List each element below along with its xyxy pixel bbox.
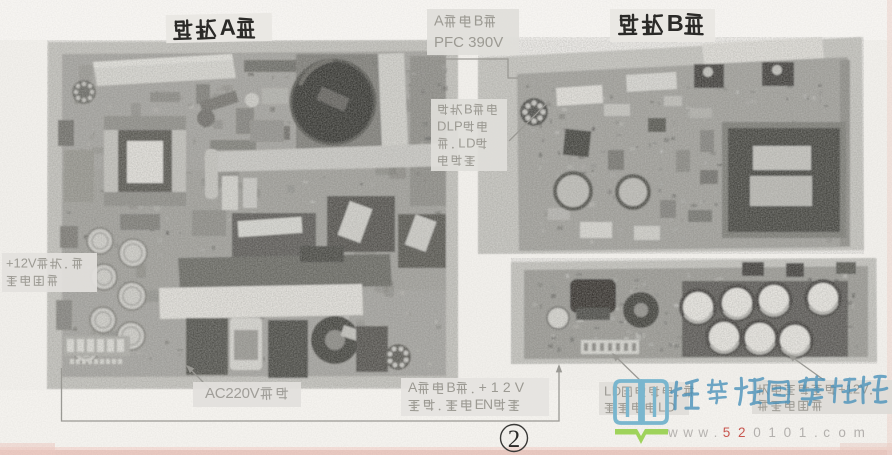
svg-text:LD: LD	[604, 383, 621, 398]
svg-text:A: A	[434, 14, 444, 30]
svg-text:0: 0	[784, 425, 792, 440]
svg-text:w: w	[697, 425, 708, 440]
svg-text:B: B	[446, 379, 455, 395]
svg-text:LD: LD	[458, 135, 475, 150]
svg-text:0: 0	[753, 425, 761, 440]
svg-text:2: 2	[508, 426, 521, 453]
svg-text:+12V: +12V	[6, 255, 37, 270]
svg-text:DLP: DLP	[437, 118, 463, 133]
svg-text:w: w	[682, 425, 693, 440]
svg-text:B: B	[474, 14, 484, 30]
svg-text:EN: EN	[475, 396, 494, 412]
svg-text:A: A	[408, 379, 418, 395]
svg-text:AC220V: AC220V	[205, 385, 260, 402]
svg-text:w: w	[667, 425, 678, 440]
svg-text:1: 1	[799, 425, 807, 440]
svg-text:PFC 390V: PFC 390V	[434, 34, 503, 51]
svg-text:.: .	[714, 425, 718, 440]
svg-text:o: o	[838, 425, 846, 440]
svg-text:5: 5	[723, 425, 731, 440]
svg-text:B: B	[464, 101, 473, 116]
svg-text:1: 1	[768, 425, 776, 440]
svg-text:m: m	[854, 425, 865, 440]
svg-text:B: B	[667, 10, 684, 36]
svg-text:2: 2	[738, 425, 746, 440]
svg-text:.: .	[814, 425, 818, 440]
svg-text:c: c	[823, 425, 830, 440]
svg-text:A: A	[219, 15, 236, 40]
